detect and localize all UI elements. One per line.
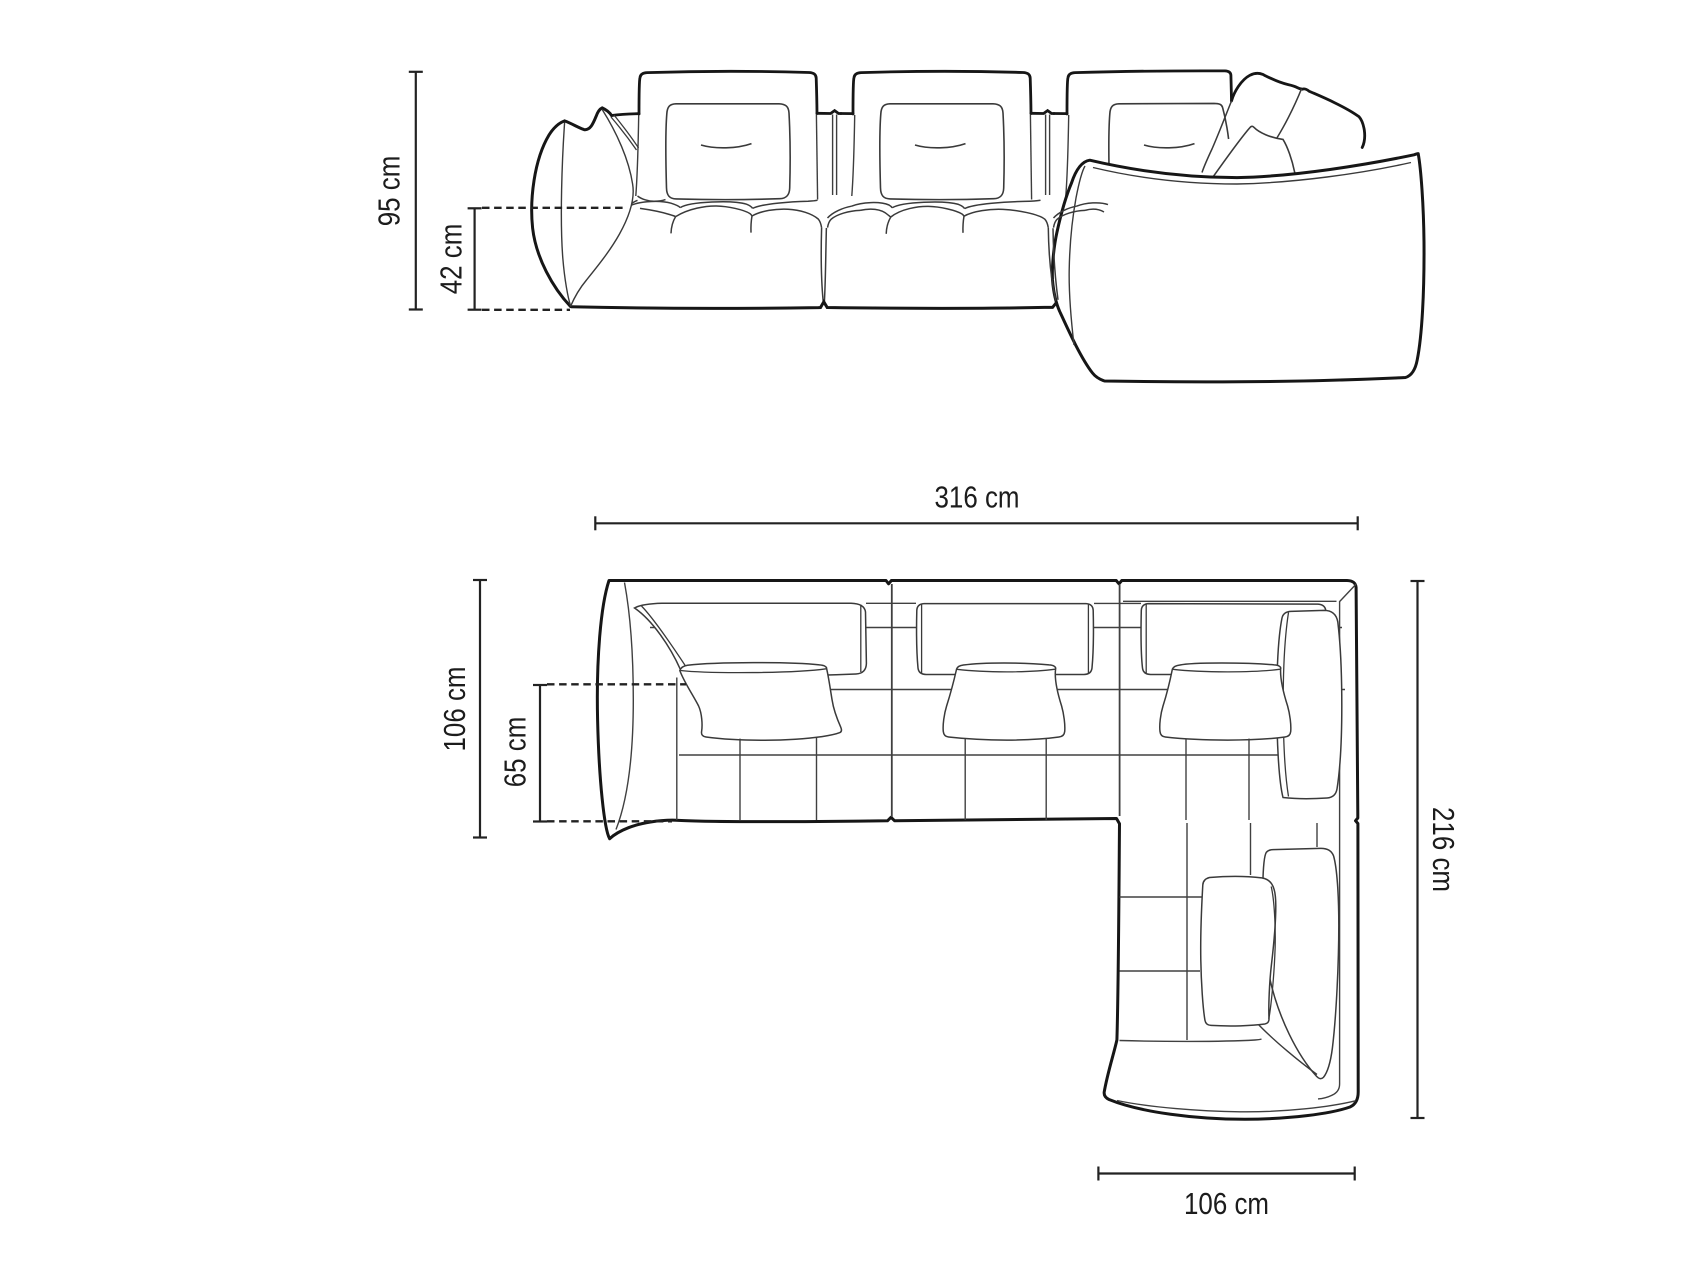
svg-text:106 cm: 106 cm	[437, 667, 471, 752]
svg-text:42 cm: 42 cm	[433, 224, 467, 295]
svg-text:316 cm: 316 cm	[935, 479, 1020, 513]
svg-text:65 cm: 65 cm	[497, 717, 531, 788]
svg-text:216 cm: 216 cm	[1427, 807, 1461, 892]
svg-text:95 cm: 95 cm	[371, 156, 405, 227]
svg-text:106 cm: 106 cm	[1184, 1186, 1269, 1220]
